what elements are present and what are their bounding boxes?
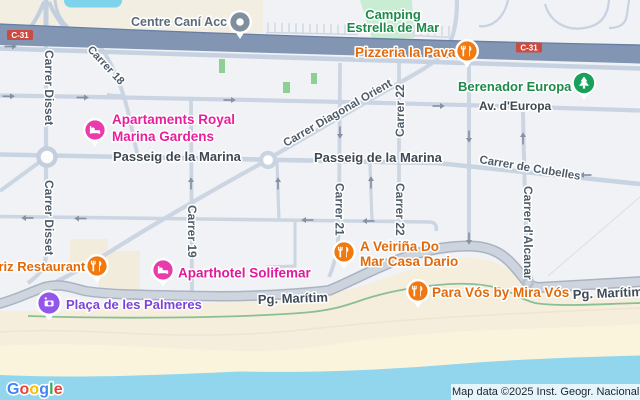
svg-text:Apartaments Royal: Apartaments Royal	[112, 112, 235, 127]
svg-text:Carrer 22: Carrer 22	[393, 183, 407, 236]
svg-text:Pizzeria la Pava: Pizzeria la Pava	[355, 45, 456, 60]
svg-text:Carrer 19: Carrer 19	[185, 205, 199, 258]
svg-text:Passeig de la Marina: Passeig de la Marina	[314, 150, 443, 165]
svg-text:Pg. Marítim: Pg. Marítim	[258, 290, 329, 307]
svg-text:Centre Caní Acc: Centre Caní Acc	[131, 15, 227, 29]
svg-text:C-31: C-31	[520, 44, 538, 53]
svg-text:C-31: C-31	[11, 31, 29, 40]
svg-text:Aparthotel Solifemar: Aparthotel Solifemar	[178, 266, 312, 281]
svg-text:Passeig de la Marina: Passeig de la Marina	[113, 149, 242, 164]
svg-text:A Veiriña Do: A Veiriña Do	[360, 239, 439, 254]
svg-text:Carrer 22: Carrer 22	[393, 84, 407, 137]
svg-text:Carrer 21: Carrer 21	[333, 183, 347, 236]
svg-text:Map data ©2025 Inst. Geogr. Na: Map data ©2025 Inst. Geogr. Nacional	[452, 386, 639, 398]
svg-text:Pg. Marítim: Pg. Marítim	[572, 284, 640, 302]
svg-text:Plaça de les Palmeres: Plaça de les Palmeres	[66, 297, 202, 312]
svg-text:Carrer Disset: Carrer Disset	[42, 50, 56, 125]
svg-text:Av. d'Europa: Av. d'Europa	[479, 99, 552, 113]
svg-text:Carrer d'Alcanar: Carrer d'Alcanar	[521, 186, 535, 280]
svg-text:Estrella de Mar: Estrella de Mar	[347, 20, 440, 35]
svg-text:Marina Gardens: Marina Gardens	[112, 129, 214, 144]
svg-text:Berenador Europa: Berenador Europa	[458, 79, 572, 94]
svg-text:Mar Casa Dario: Mar Casa Dario	[360, 254, 458, 269]
svg-text:Google: Google	[7, 381, 63, 398]
svg-text:Carrer Disset: Carrer Disset	[42, 180, 56, 255]
svg-text:Para Vós by Mira Vós: Para Vós by Mira Vós	[432, 285, 569, 300]
svg-text:riz Restaurant: riz Restaurant	[0, 259, 86, 274]
